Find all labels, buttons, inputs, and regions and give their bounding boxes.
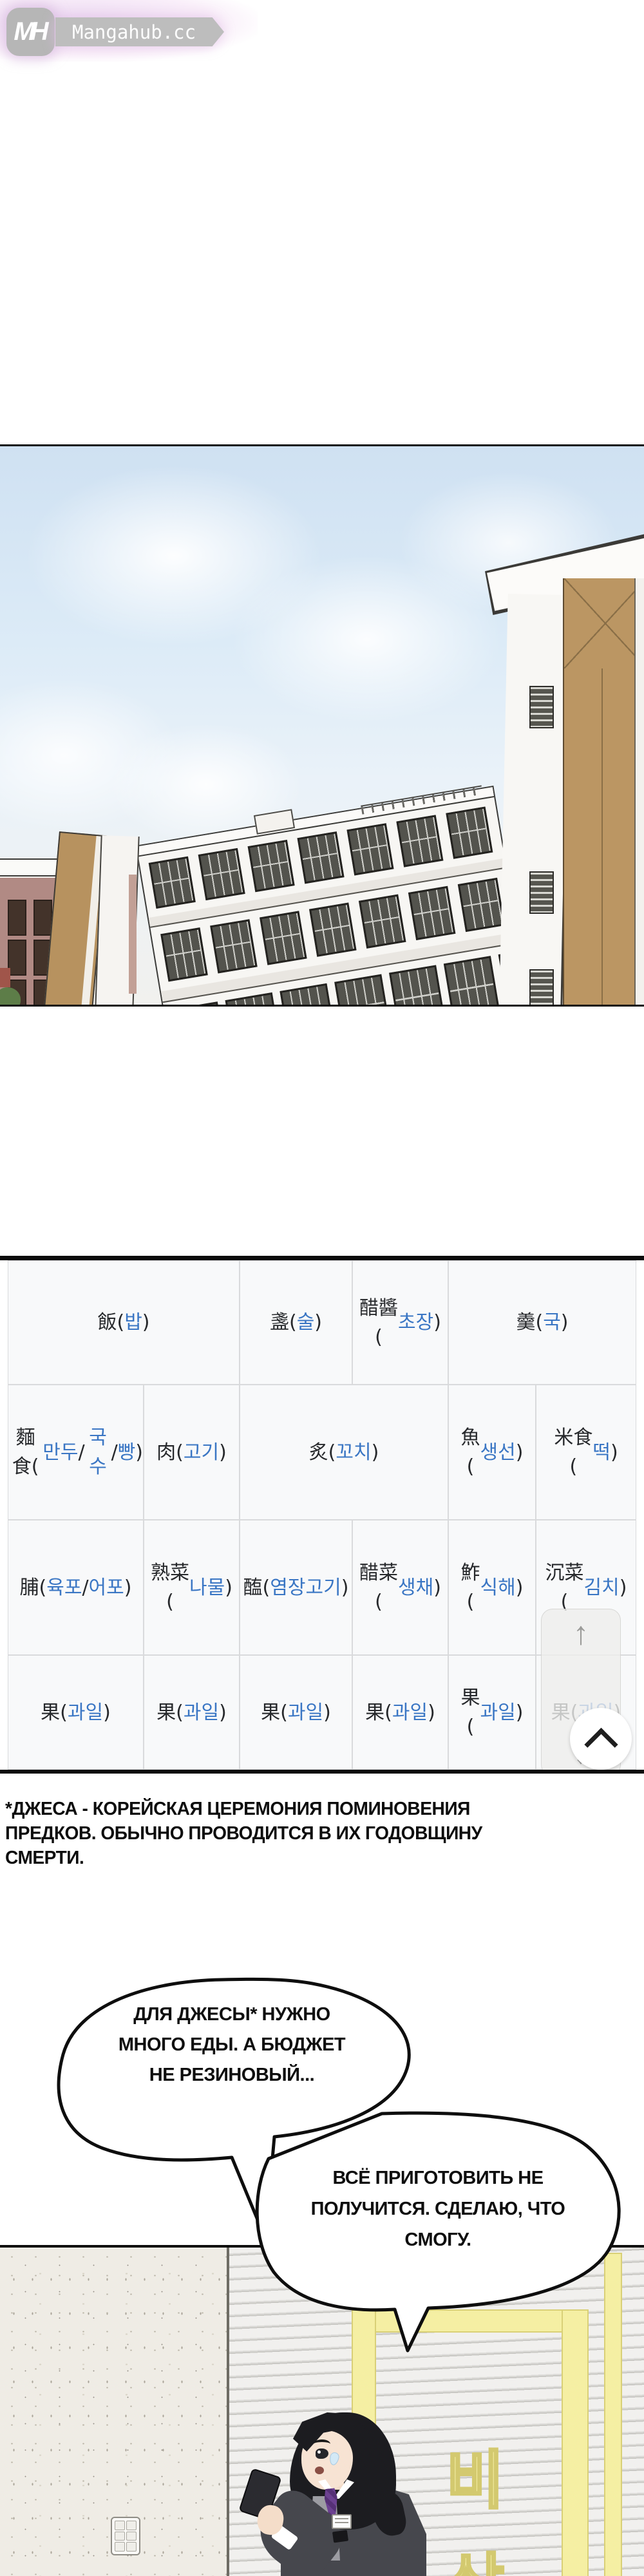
window [396, 815, 443, 867]
tower-column [499, 594, 571, 1007]
table-cell: 盞(술) [240, 1260, 352, 1385]
window [8, 940, 26, 976]
woman-eyebrow [314, 2439, 330, 2448]
table-cell: 魚(생선) [448, 1385, 536, 1520]
pocket [332, 2530, 348, 2543]
table-cell: 熟菜(나물) [144, 1520, 240, 1655]
table-cell: 醢(염장고기) [240, 1520, 352, 1655]
window [346, 823, 393, 875]
emergency-sign: 비 상 [443, 2429, 507, 2576]
window [210, 919, 258, 973]
table-top-border [0, 1256, 644, 1260]
table-cell: 果(과일) [240, 1655, 352, 1770]
table-cell: 肉(고기) [144, 1385, 240, 1520]
jesa-table-screenshot: 飯(밥)盞(술)醋醬(초장)羹(국)麵食(만두/국수/빵)肉(고기)炙(꼬치)魚… [0, 1256, 644, 1774]
table-cell: 果(과일) [8, 1655, 144, 1770]
window [458, 878, 506, 932]
name-tag [332, 2514, 352, 2529]
window [446, 806, 493, 858]
table-cell: 米食(떡) [536, 1385, 636, 1520]
window [33, 900, 52, 936]
table-cell: 果(과일) [144, 1655, 240, 1770]
window [248, 840, 295, 892]
window [444, 956, 500, 1007]
speech-bubble-1-text: ДЛЯ ДЖЕСЫ* НУЖНО МНОГО ЕДЫ. А БЮДЖЕТ НЕ … [84, 2000, 380, 2090]
wall-switch-plate [111, 2517, 140, 2555]
table-cell: 醋醬(초장) [352, 1260, 448, 1385]
chevron-up-icon [584, 1727, 618, 1761]
window [298, 831, 345, 884]
window [279, 983, 336, 1007]
window [389, 965, 446, 1007]
table-cell: 果(과일) [448, 1655, 536, 1770]
speech-bubble-2-text: ВСЁ ПРИГОТОВИТЬ НЕ ПОЛУЧИТСЯ. СДЕЛАЮ, ЧТ… [270, 2163, 605, 2255]
table-cell: 果(과일) [352, 1655, 448, 1770]
table-bottom-border [0, 1770, 644, 1774]
manga-reader-page: MH Mangahub.cc [0, 0, 644, 2576]
tower-tan-face [563, 578, 644, 1007]
table-cell: 飯(밥) [8, 1260, 240, 1385]
window [408, 886, 456, 940]
window [8, 900, 26, 936]
distant-roof [0, 968, 10, 987]
window [260, 911, 307, 965]
tower-right-edge [634, 578, 644, 1007]
table-cell: 鮓(식해) [448, 1520, 536, 1655]
table-cell: 脯(육포/어포) [8, 1520, 144, 1655]
window [359, 895, 406, 949]
window [171, 1001, 227, 1007]
table-cell: 羹(국) [448, 1260, 636, 1385]
table-cell: 炙(꼬치) [240, 1385, 448, 1520]
window [334, 974, 391, 1007]
scroll-to-top-button[interactable] [570, 1708, 632, 1770]
window [160, 927, 208, 981]
table-cell: 麵食(만두/국수/빵) [8, 1385, 144, 1520]
window [309, 903, 357, 957]
window [225, 992, 282, 1007]
site-name-label: Mangahub.cc [72, 21, 196, 43]
woman-mouth [315, 2467, 324, 2474]
balcony [529, 969, 554, 1007]
sign-char-bi: 비 [443, 2429, 507, 2532]
pink-wall-strip [129, 875, 137, 994]
mangahub-logo[interactable]: MH [6, 8, 55, 56]
mangahub-logo-monogram: MH [14, 17, 43, 46]
translator-footnote: *ДЖЕСА - КОРЕЙСКАЯ ЦЕРЕМОНИЯ ПОМИНОВЕНИЯ… [5, 1797, 505, 1870]
balcony [529, 686, 554, 728]
sign-char-sang: 상 [443, 2532, 507, 2576]
table-cell: 醋菜(생채) [352, 1520, 448, 1655]
balcony [529, 871, 554, 914]
window [149, 857, 196, 909]
panel-school-building [0, 444, 644, 1007]
site-banner[interactable]: Mangahub.cc [55, 17, 224, 46]
scroll-up-icon[interactable]: ↑ [573, 1615, 589, 1652]
window [198, 848, 245, 900]
